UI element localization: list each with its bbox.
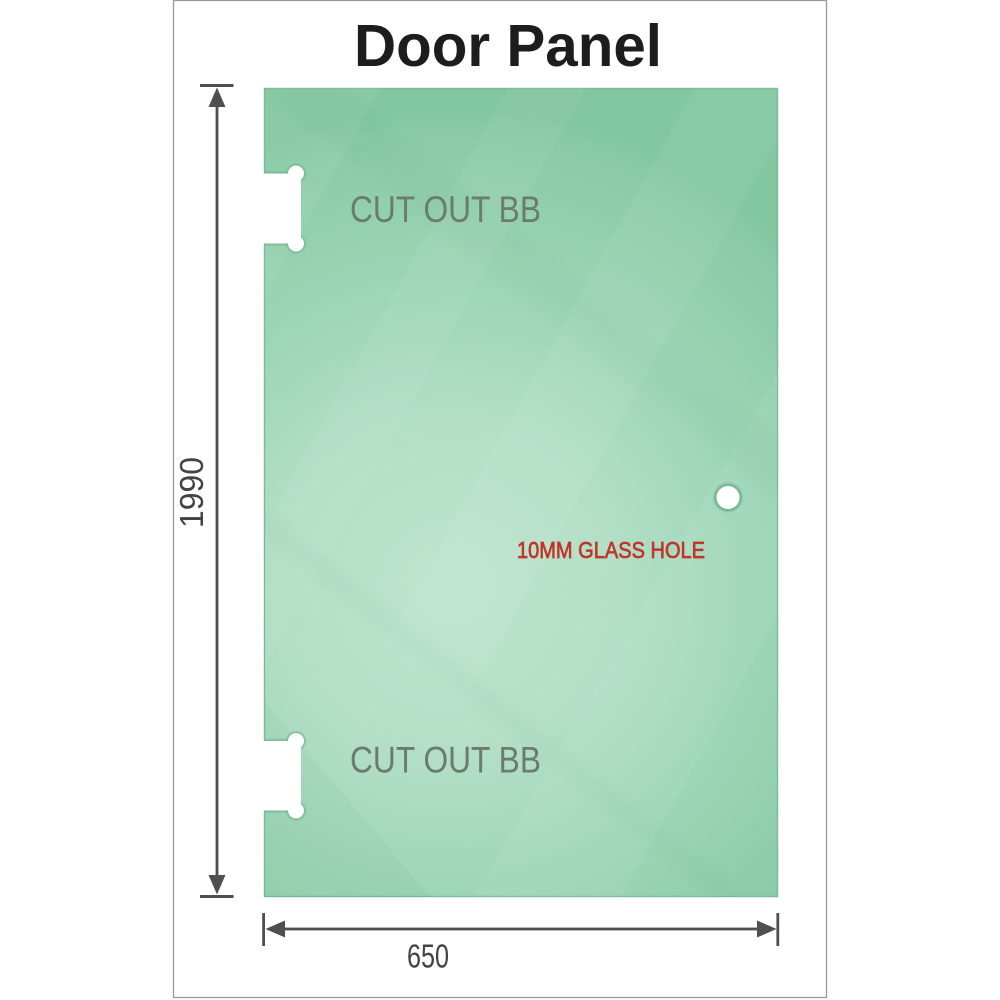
- svg-text:CUT OUT BB: CUT OUT BB: [350, 189, 541, 230]
- svg-text:1990: 1990: [173, 457, 210, 528]
- svg-text:650: 650: [407, 938, 449, 975]
- svg-text:Door Panel: Door Panel: [354, 13, 662, 79]
- svg-text:10MM GLASS HOLE: 10MM GLASS HOLE: [517, 537, 705, 563]
- svg-text:CUT OUT BB: CUT OUT BB: [350, 740, 541, 781]
